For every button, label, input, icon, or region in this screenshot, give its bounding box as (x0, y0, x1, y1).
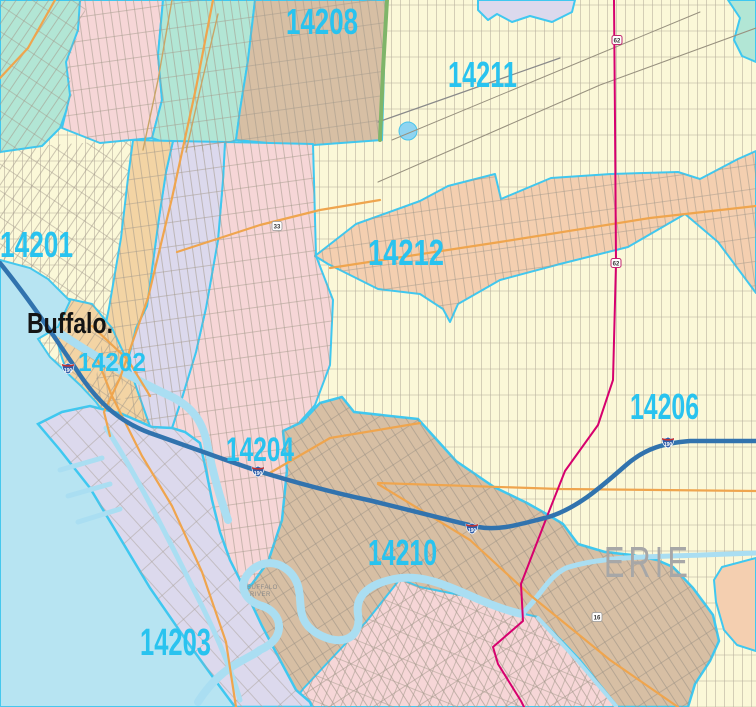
map-canvas: 190 190 190 190 62 62 33 (0, 0, 756, 707)
shield-number: 62 (614, 38, 621, 44)
zip-label-14202: 14202 (78, 347, 146, 377)
buffalo-river-label-line1: BUFFALO (247, 585, 278, 591)
zip-label-14212: 14212 (368, 232, 444, 273)
city-label-buffalo: Buffalo. (27, 308, 113, 340)
shield-number: 190 (64, 368, 73, 374)
zip-label-14203: 14203 (140, 622, 211, 664)
zip-code-map-buffalo: 190 190 190 190 62 62 33 (0, 0, 756, 707)
shield-number: 33 (274, 224, 281, 230)
shield-number: 16 (594, 615, 601, 621)
shield-number: 62 (613, 261, 620, 267)
zip-label-14201: 14201 (0, 224, 73, 265)
route-16-shield: 16 (592, 613, 602, 622)
zip-label-14210: 14210 (368, 532, 437, 573)
us-62-shield: 62 (612, 36, 622, 45)
zip-label-14208: 14208 (286, 1, 358, 42)
zip-label-14206: 14206 (630, 386, 699, 427)
shield-number: 190 (664, 442, 673, 448)
buffalo-river-label-line2: RIVER (250, 592, 271, 598)
shield-number: 190 (468, 528, 477, 534)
shield-number: 190 (254, 471, 263, 477)
zip-label-14204: 14204 (226, 431, 294, 469)
route-33-shield: 33 (272, 222, 282, 231)
zip-label-14211: 14211 (448, 54, 517, 95)
us-62-shield: 62 (611, 259, 621, 268)
county-label-erie: ERIE (604, 538, 692, 587)
